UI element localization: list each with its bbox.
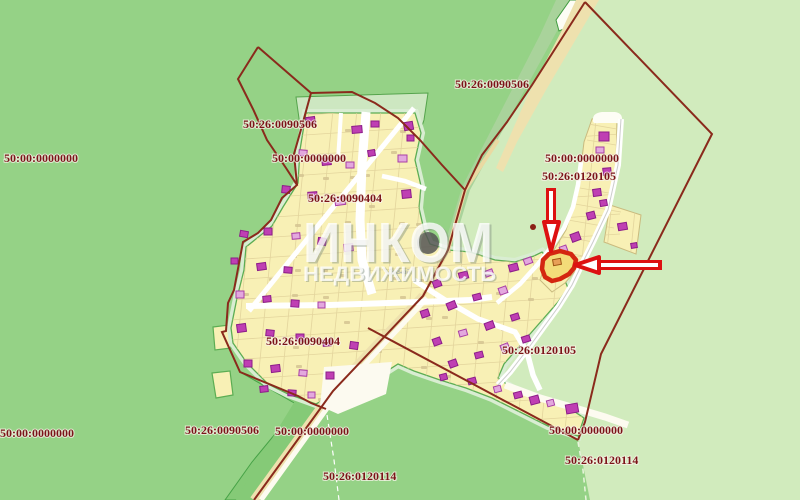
- svg-text:50:26:0090506: 50:26:0090506: [243, 117, 317, 131]
- svg-text:50:26:0120114: 50:26:0120114: [323, 469, 396, 483]
- svg-text:50:26:0090404: 50:26:0090404: [266, 334, 340, 348]
- svg-text:50:26:0120105: 50:26:0120105: [542, 169, 616, 183]
- svg-text:50:00:0000000: 50:00:0000000: [275, 424, 349, 438]
- svg-text:50:26:0120114: 50:26:0120114: [565, 453, 638, 467]
- svg-text:50:00:0000000: 50:00:0000000: [272, 151, 346, 165]
- svg-text:НЕДВИЖИМОСТЬ: НЕДВИЖИМОСТЬ: [303, 263, 496, 286]
- svg-text:50:00:0000000: 50:00:0000000: [545, 151, 619, 165]
- svg-text:50:26:0120105: 50:26:0120105: [502, 343, 576, 357]
- svg-text:50:26:0090404: 50:26:0090404: [308, 191, 382, 205]
- svg-text:50:00:0000000: 50:00:0000000: [0, 426, 74, 440]
- svg-text:50:26:0090506: 50:26:0090506: [455, 77, 529, 91]
- svg-text:50:00:0000000: 50:00:0000000: [549, 423, 623, 437]
- svg-text:50:26:0090506: 50:26:0090506: [185, 423, 259, 437]
- svg-text:50:00:0000000: 50:00:0000000: [4, 151, 78, 165]
